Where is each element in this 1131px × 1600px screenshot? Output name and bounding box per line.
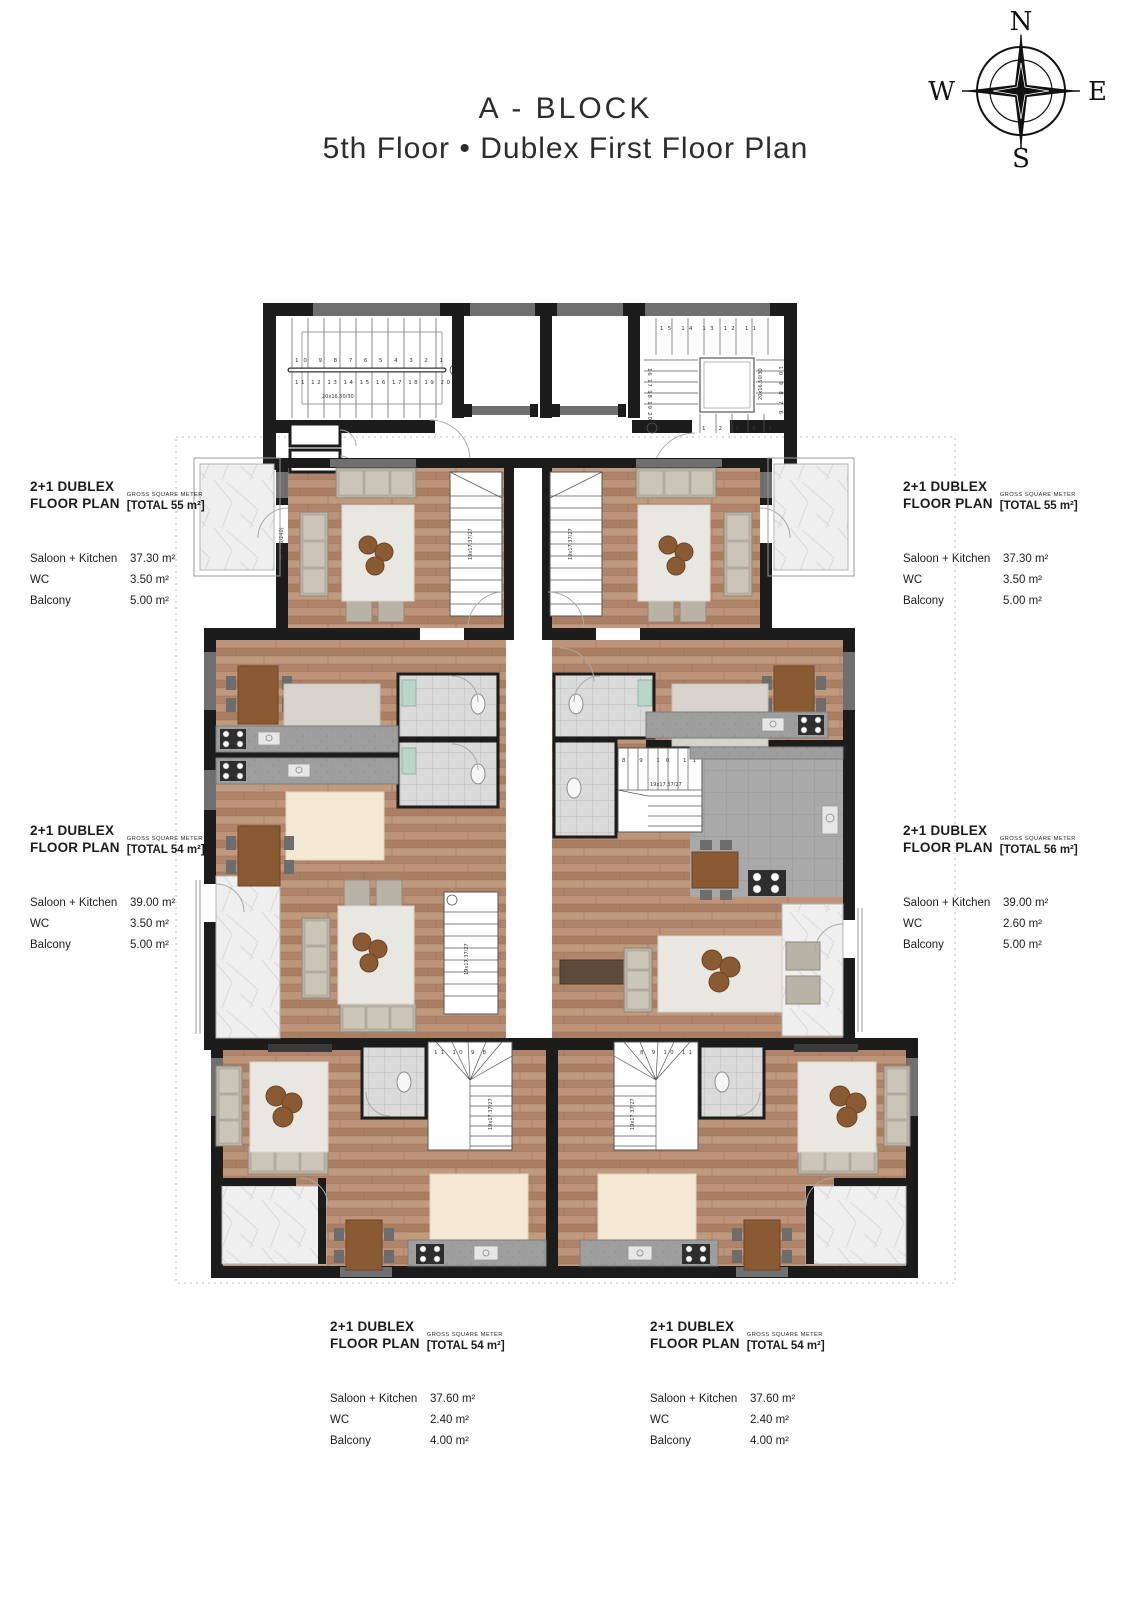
stair-note: 19x17.37/27 (488, 1098, 494, 1130)
gross-label: GROSS SQUARE METER (1000, 836, 1078, 842)
unit-plan-label: FLOOR PLAN (30, 495, 120, 512)
room-label: Balcony (903, 595, 1003, 607)
balcony-bottom-right (806, 1178, 906, 1264)
room-label: Saloon + Kitchen (330, 1393, 430, 1405)
room-area: 2.40 m² (750, 1414, 789, 1426)
unit-card-middle-right: 2+1 DUBLEXFLOOR PLAN GROSS SQUARE METER[… (903, 822, 1075, 955)
unit-total: [TOTAL 55 m²] (127, 500, 205, 512)
room-area: 3.50 m² (1003, 574, 1042, 586)
unit-plan-label: FLOOR PLAN (650, 1335, 740, 1352)
wc-room (362, 1046, 426, 1118)
kitchen-counter (580, 1240, 718, 1266)
kitchen-counter (646, 712, 828, 738)
room-label: Saloon + Kitchen (650, 1393, 750, 1405)
stair-numbers: 11 12 13 14 15 16 17 18 19 20 (295, 380, 451, 386)
room-area: 37.30 m² (130, 553, 175, 565)
unit-name: 2+1 DUBLEX (903, 822, 993, 839)
shower-tray (402, 680, 416, 706)
wc-room (700, 1046, 764, 1118)
room-area: 3.50 m² (130, 574, 169, 586)
compass-south: S (1012, 144, 1030, 174)
unit-name: 2+1 DUBLEX (30, 822, 120, 839)
room-area: 4.00 m² (750, 1435, 789, 1447)
unit-plan-label: FLOOR PLAN (903, 495, 993, 512)
rug (430, 1174, 528, 1240)
unit-plan-label: FLOOR PLAN (30, 839, 120, 856)
stair-note: 20x16.50/30 (758, 368, 764, 400)
unit-name: 2+1 DUBLEX (30, 478, 120, 495)
room-label: WC (903, 918, 1003, 930)
duplex-stair: 19x17.37/27 (444, 892, 498, 1014)
kitchen-counter (216, 758, 398, 784)
tv-unit (560, 960, 624, 984)
stair-numbers: 8 9 10 11 (640, 1050, 692, 1056)
unit-card-top-left: 2+1 DUBLEXFLOOR PLAN GROSS SQUARE METER[… (30, 478, 202, 611)
unit-name: 2+1 DUBLEX (330, 1318, 420, 1335)
toilet (715, 1072, 729, 1092)
stair-note: 19x17.37/27 (468, 528, 474, 560)
room-area: 5.00 m² (1003, 595, 1042, 607)
room-area: 2.40 m² (430, 1414, 469, 1426)
compass-west: W (928, 77, 955, 107)
room-label: WC (30, 574, 130, 586)
core-stair-left: 10 9 8 7 6 5 4 3 2 1 11 12 13 14 15 16 1… (290, 318, 460, 418)
room-label: Saloon + Kitchen (903, 897, 1003, 909)
balcony-bottom-left (222, 1178, 328, 1264)
room-label: Balcony (330, 1435, 430, 1447)
core-stair-right: 15 14 13 12 11 16 17 18 19 20 10 9 8 7 6… (644, 318, 784, 433)
gross-label: GROSS SQUARE METER (427, 1332, 505, 1338)
rug (638, 505, 710, 601)
door-arc (430, 420, 470, 460)
stair-numbers: 8 9 10 11 (622, 758, 696, 764)
room-label: Balcony (30, 939, 130, 951)
room-label: WC (650, 1414, 750, 1426)
room-label: Saloon + Kitchen (30, 553, 130, 565)
stair-note: 19x17.37/27 (630, 1098, 636, 1130)
room-area: 3.50 m² (130, 918, 169, 930)
room-area: 5.00 m² (1003, 939, 1042, 951)
winder-stair: 8 9 10 11 19x17.37/27 (614, 1042, 698, 1150)
unit-total: [TOTAL 56 m²] (1000, 844, 1078, 856)
stair-note: 19x17.37/27 (568, 528, 574, 560)
gross-label: GROSS SQUARE METER (127, 492, 205, 498)
gross-label: GROSS SQUARE METER (747, 1332, 825, 1338)
room-area: 2.60 m² (1003, 918, 1042, 930)
kitchen-counter (216, 726, 398, 752)
unit-total: [TOTAL 54 m²] (747, 1340, 825, 1352)
unit-plan-label: FLOOR PLAN (903, 839, 993, 856)
room-label: Balcony (650, 1435, 750, 1447)
room-label: WC (30, 918, 130, 930)
unit-plan-label: FLOOR PLAN (330, 1335, 420, 1352)
compass-north: N (1010, 7, 1033, 37)
stair-core: 10 9 8 7 6 5 4 3 2 1 11 12 13 14 15 16 1… (263, 303, 797, 475)
room-label: Saloon + Kitchen (30, 897, 130, 909)
gross-label: GROSS SQUARE METER (127, 836, 205, 842)
unit-card-top-right: 2+1 DUBLEXFLOOR PLAN GROSS SQUARE METER[… (903, 478, 1075, 611)
unit-name: 2+1 DUBLEX (903, 478, 993, 495)
stair-numbers: 15 14 13 12 11 (660, 326, 756, 332)
room-area: 37.60 m² (430, 1393, 475, 1405)
stair-note: 19x17.37/27 (464, 943, 470, 975)
tv-unit (268, 1044, 332, 1052)
stair-note: 19x17.37/27 (650, 782, 682, 788)
stair-numbers: 1 2 3 4 5 (702, 426, 773, 432)
compass-east: E (1088, 77, 1107, 107)
room-area: 39.00 m² (130, 897, 175, 909)
duplex-stair: 19x17.37/27 (450, 472, 502, 616)
room-label: Balcony (903, 939, 1003, 951)
floor-plan-drawing: 10 9 8 7 6 5 4 3 2 1 11 12 13 14 15 16 1… (0, 0, 1131, 1600)
toilet (397, 1072, 411, 1092)
winder-stair: 8 9 10 11 19x17.37/27 (618, 748, 702, 832)
room-label: Saloon + Kitchen (903, 553, 1003, 565)
rug (598, 1174, 696, 1240)
room-label: WC (330, 1414, 430, 1426)
unit-total: [TOTAL 54 m²] (127, 844, 205, 856)
room-area: 37.30 m² (1003, 553, 1048, 565)
unit-card-middle-left: 2+1 DUBLEXFLOOR PLAN GROSS SQUARE METER[… (30, 822, 202, 955)
room-label: Balcony (30, 595, 130, 607)
winder-stair: 11 10 9 8 19x17.37/27 (428, 1042, 512, 1150)
room-area: 5.00 m² (130, 939, 169, 951)
stair-numbers: 11 10 9 8 (434, 1050, 487, 1056)
stair-numbers: 16 17 18 19 20 (646, 368, 652, 421)
kitchen-counter (408, 1240, 546, 1266)
shower-tray (638, 680, 652, 706)
stair-numbers: 10 9 8 7 6 5 4 3 2 1 (295, 358, 443, 364)
gross-label: GROSS SQUARE METER (1000, 492, 1078, 498)
unit-total: [TOTAL 55 m²] (1000, 500, 1078, 512)
room-area: 5.00 m² (130, 595, 169, 607)
unit-card-bottom-left: 2+1 DUBLEXFLOOR PLAN GROSS SQUARE METER[… (330, 1318, 502, 1451)
shower-tray (402, 748, 416, 774)
room-area: 37.60 m² (750, 1393, 795, 1405)
unit-card-bottom-right: 2+1 DUBLEXFLOOR PLAN GROSS SQUARE METER[… (650, 1318, 822, 1451)
unit-total: [TOTAL 54 m²] (427, 1340, 505, 1352)
duplex-stair: 19x17.37/27 (550, 472, 602, 616)
room-label: WC (903, 574, 1003, 586)
unit-name: 2+1 DUBLEX (650, 1318, 740, 1335)
rug (286, 792, 384, 860)
toilet (567, 778, 581, 798)
floor-plan-sheet: A - BLOCK 5th Floor • Dublex First Floor… (0, 0, 1131, 1600)
tv-unit (794, 1044, 858, 1052)
toilet (569, 694, 583, 714)
room-area: 39.00 m² (1003, 897, 1048, 909)
room-area: 4.00 m² (430, 1435, 469, 1447)
elevator-shafts (452, 316, 640, 418)
compass-rose: N E S W (928, 7, 1107, 174)
stair-numbers: 10 9 8 7 6 (777, 366, 783, 415)
stair-note: 20x16.50/30 (322, 394, 354, 400)
